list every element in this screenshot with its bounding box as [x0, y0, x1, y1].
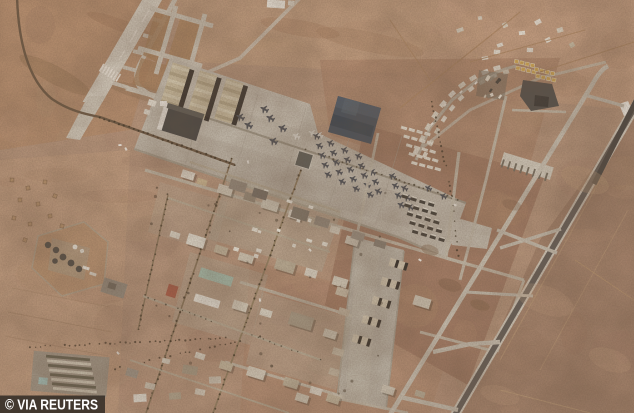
svg-text:© VIA REUTERS: © VIA REUTERS	[5, 397, 98, 413]
